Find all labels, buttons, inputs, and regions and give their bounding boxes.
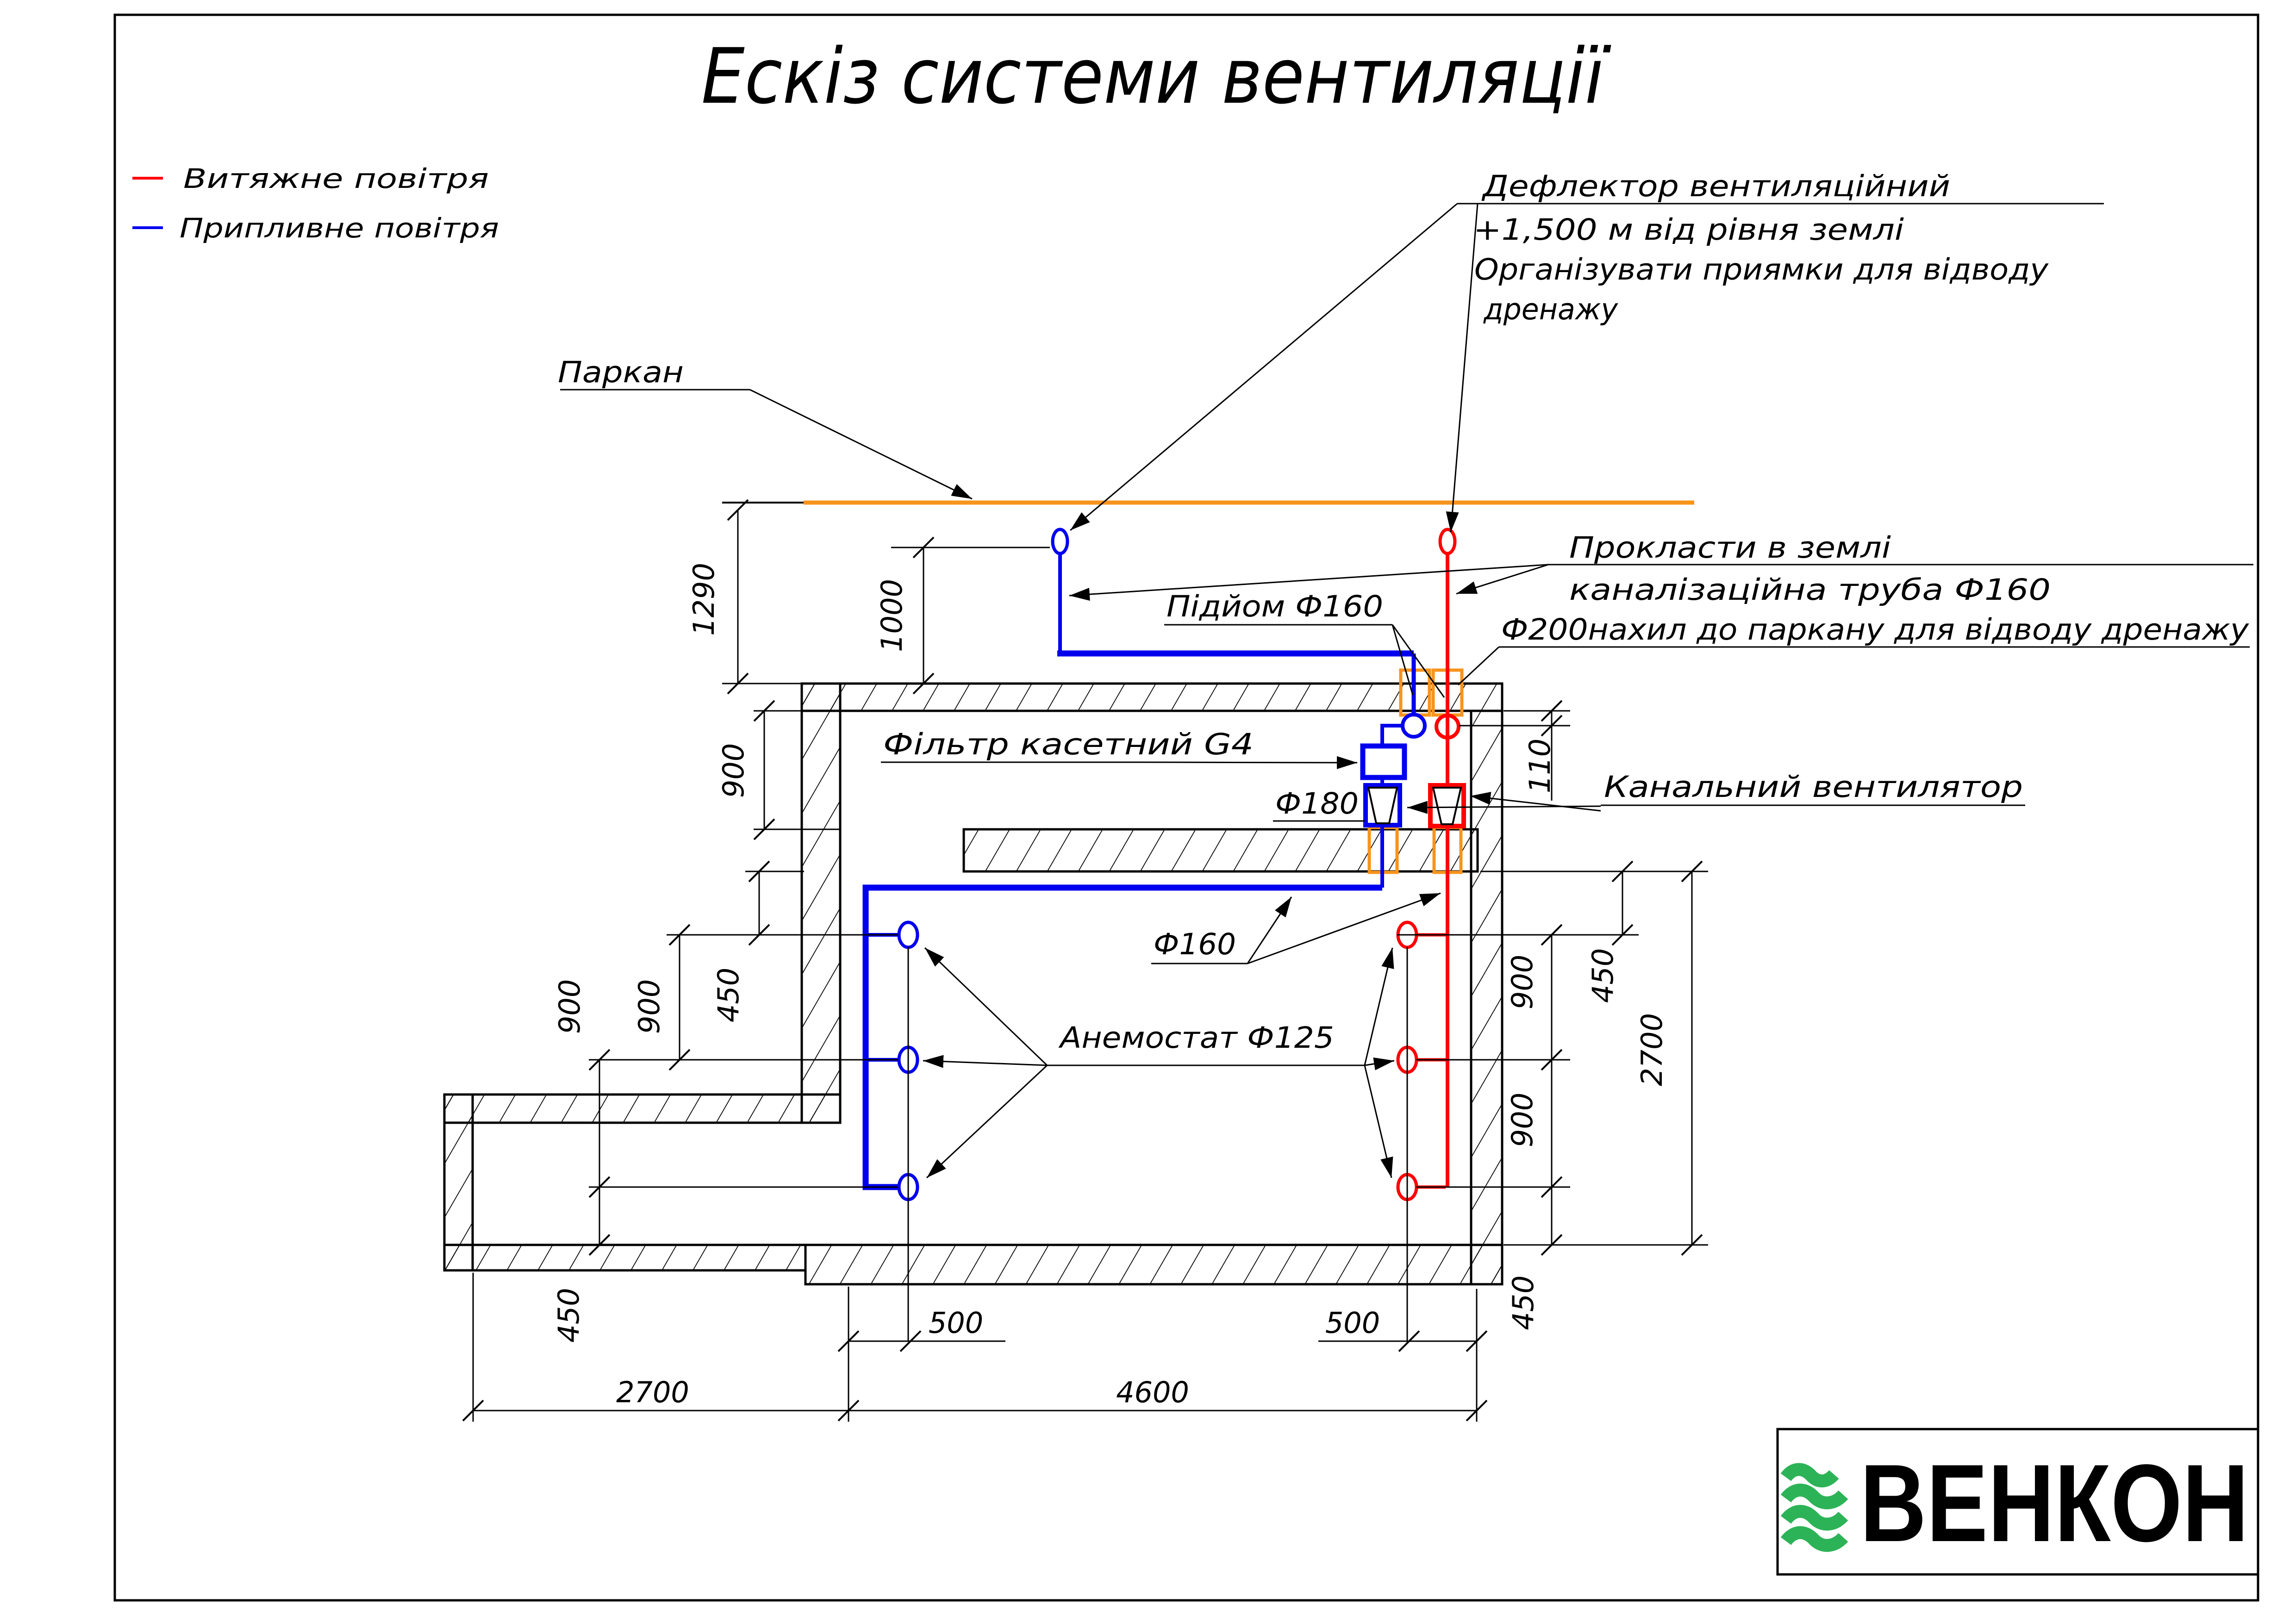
rise-label: Підйом Ф160 bbox=[1167, 590, 1383, 623]
page-title: Ескіз системи вентиляції bbox=[701, 32, 1611, 121]
filter-label-group: Фільтр касетний G4 bbox=[881, 728, 1357, 763]
legend: Витяжне повітря Припливне повітря bbox=[132, 163, 499, 244]
fence-label: Паркан bbox=[558, 355, 684, 389]
exhaust-fan-symbol bbox=[1433, 788, 1461, 824]
d180-label-group: Ф180 bbox=[1273, 787, 1365, 821]
deflector-label-group: Дефлектор вентиляційний +1,500 м від рів… bbox=[1070, 169, 2104, 532]
dim-2700-right: 2700 bbox=[1635, 1013, 1669, 1086]
buried-pipe-label-3: Ф200нахил до паркану для відводу дренажу bbox=[1501, 613, 2249, 647]
supply-duct-fitting-circle bbox=[1403, 715, 1425, 737]
dim-500-right: 500 bbox=[1325, 1306, 1380, 1340]
annex-floor-slab bbox=[444, 1245, 805, 1270]
d160-label-group: Ф160 bbox=[1151, 893, 1441, 964]
annex-top-slab bbox=[444, 1094, 840, 1123]
filter-box bbox=[1363, 746, 1404, 777]
supply-deflector-circle bbox=[1053, 529, 1067, 553]
anemostat-label: Анемостат Ф125 bbox=[1058, 1021, 1334, 1055]
dim-900-wall: 900 bbox=[717, 743, 750, 798]
duct-fan-label: Канальний вентилятор bbox=[1604, 770, 2023, 804]
dim-1290: 1290 bbox=[687, 563, 721, 636]
exhaust-fan-box bbox=[1430, 785, 1464, 826]
dim-450-right-bottom: 450 bbox=[1506, 1275, 1540, 1330]
deflector-label-3: Організувати приямки для відводу bbox=[1474, 253, 2049, 286]
logo: ВЕНКОН bbox=[1778, 1429, 2258, 1574]
ventilation-drawing: Ескіз системи вентиляції Витяжне повітря… bbox=[0, 0, 2296, 1623]
dim-2700-left: 2700 bbox=[616, 1375, 689, 1409]
d180-label: Ф180 bbox=[1275, 787, 1359, 821]
dim-500-left: 500 bbox=[929, 1306, 983, 1340]
dim-1000: 1000 bbox=[875, 579, 909, 652]
dim-900-right-2: 900 bbox=[1505, 1093, 1539, 1147]
dim-450-left-bottom: 450 bbox=[552, 1288, 586, 1343]
deflector-label-2: +1,500 м від рівня землі bbox=[1473, 213, 1904, 247]
buried-pipe-label-2: каналізаційна труба Ф160 bbox=[1569, 573, 2051, 607]
dim-900-right-1: 900 bbox=[1505, 955, 1539, 1009]
dim-450-right-top: 450 bbox=[1586, 948, 1620, 1003]
supply-fan-box bbox=[1366, 785, 1400, 825]
roof-slab bbox=[802, 684, 1502, 711]
fan-symbols bbox=[1368, 788, 1461, 824]
exhaust-deflector-circle bbox=[1440, 529, 1455, 553]
dim-4600: 4600 bbox=[1116, 1375, 1189, 1409]
filter-label: Фільтр касетний G4 bbox=[883, 728, 1254, 761]
d160-label: Ф160 bbox=[1154, 927, 1236, 961]
fence-label-group: Паркан bbox=[558, 355, 972, 499]
anemostat-label-group: Анемостат Ф125 bbox=[923, 948, 1394, 1178]
main-floor-slab bbox=[805, 1245, 1502, 1284]
supply-fan-symbol bbox=[1368, 788, 1397, 823]
building-structure bbox=[444, 684, 1502, 1284]
buried-pipe-label-1: Прокласти в землі bbox=[1569, 531, 1891, 565]
deflector-label-4: дренажу bbox=[1483, 292, 1618, 326]
deflector-label-1: Дефлектор вентиляційний bbox=[1481, 169, 1950, 203]
dim-110: 110 bbox=[1523, 739, 1557, 793]
logo-text: ВЕНКОН bbox=[1860, 1442, 2249, 1565]
ceiling-slab bbox=[964, 829, 1478, 871]
left-wall bbox=[802, 684, 840, 1123]
dim-450-left: 450 bbox=[711, 968, 745, 1022]
dim-900-left-1: 900 bbox=[632, 979, 666, 1034]
legend-supply-label: Припливне повітря bbox=[180, 212, 499, 244]
dim-900-left-2: 900 bbox=[553, 979, 586, 1034]
supply-anemostat-1 bbox=[899, 922, 917, 947]
legend-exhaust-label: Витяжне повітря bbox=[183, 163, 489, 194]
